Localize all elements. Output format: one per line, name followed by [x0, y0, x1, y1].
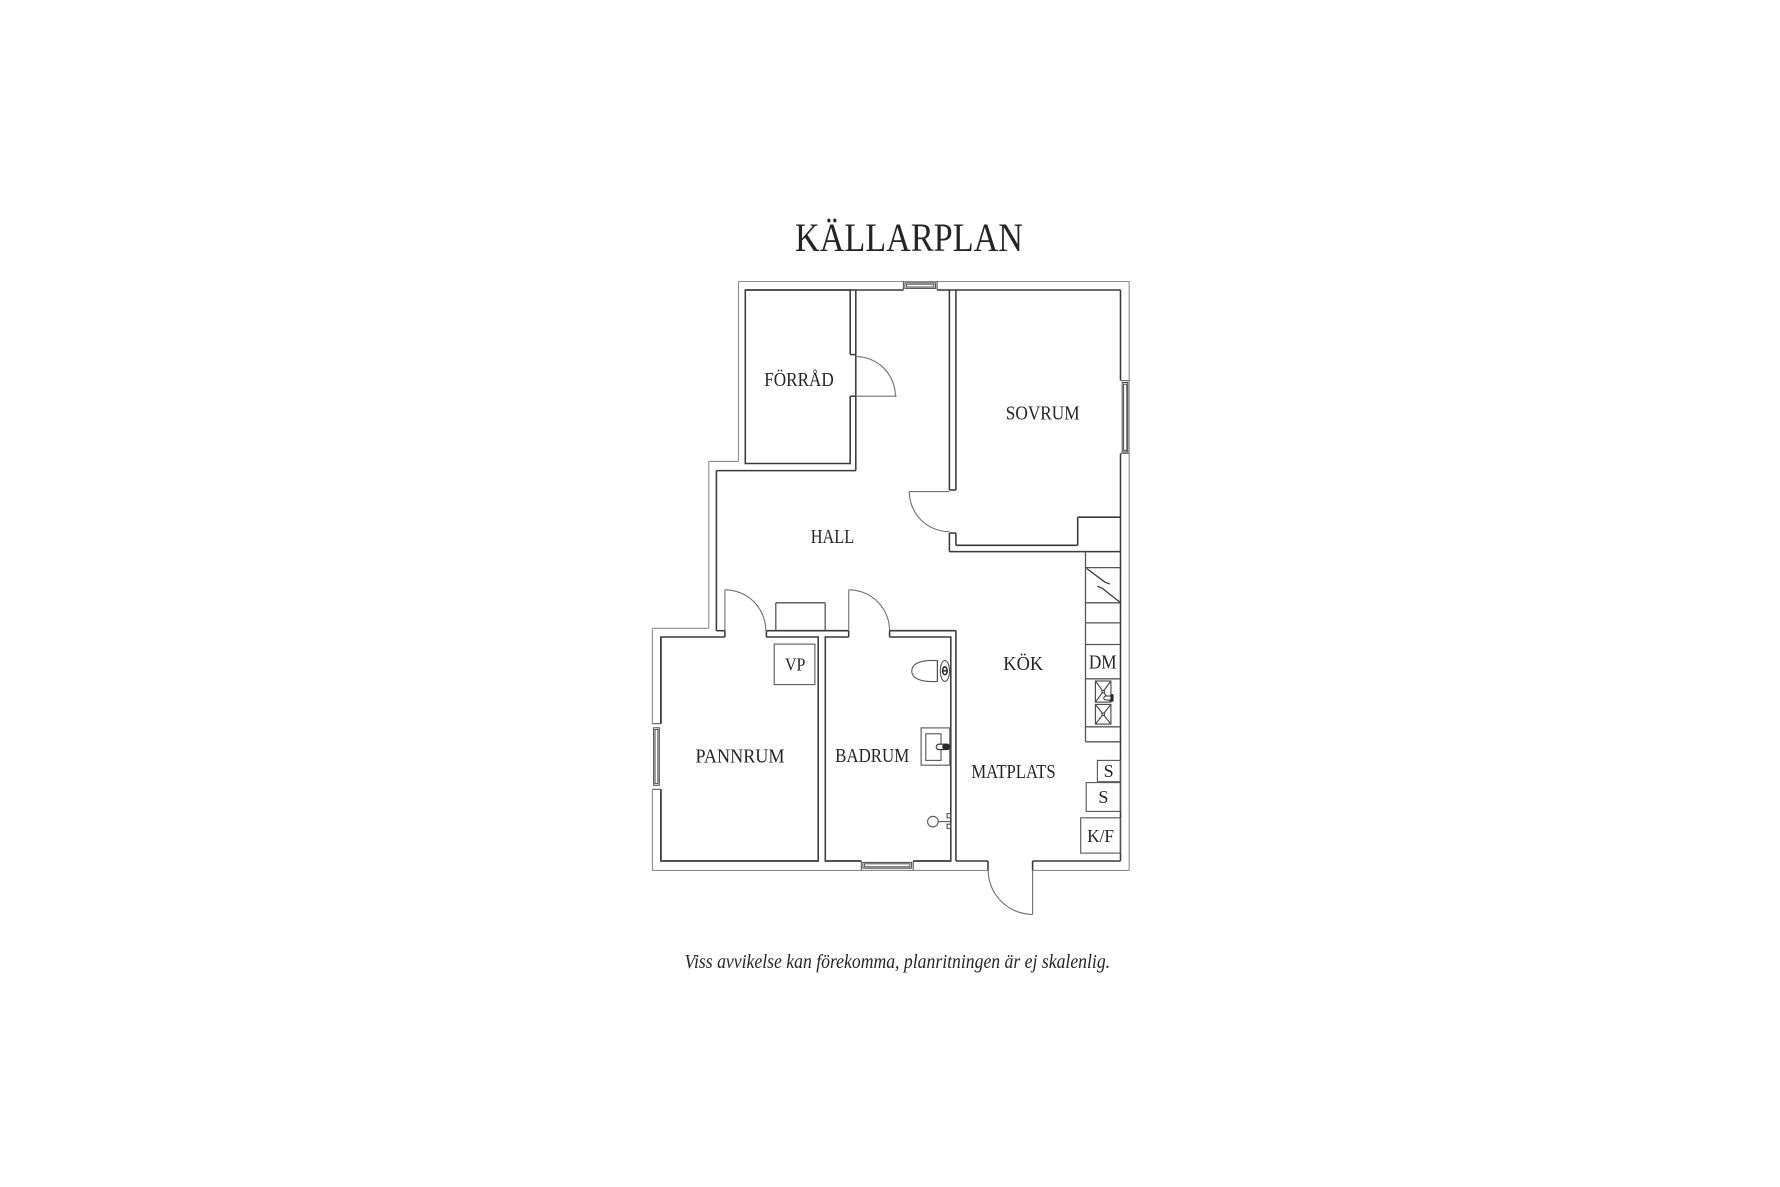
svg-text:FÖRRÅD: FÖRRÅD	[764, 369, 834, 391]
svg-text:K/F: K/F	[1087, 826, 1114, 846]
svg-text:BADRUM: BADRUM	[835, 745, 909, 767]
svg-text:DM: DM	[1089, 652, 1117, 674]
svg-text:S: S	[1098, 787, 1108, 807]
svg-text:PANNRUM: PANNRUM	[696, 746, 785, 768]
svg-text:KÄLLARPLAN: KÄLLARPLAN	[795, 215, 1023, 260]
svg-text:HALL: HALL	[811, 526, 855, 548]
svg-text:MATPLATS: MATPLATS	[971, 761, 1055, 783]
svg-text:Viss avvikelse kan förekomma,: Viss avvikelse kan förekomma, planritnin…	[685, 951, 1111, 973]
svg-text:S: S	[1104, 761, 1114, 781]
svg-text:VP: VP	[785, 654, 805, 674]
svg-text:KÖK: KÖK	[1003, 653, 1043, 675]
svg-text:SOVRUM: SOVRUM	[1006, 403, 1080, 425]
